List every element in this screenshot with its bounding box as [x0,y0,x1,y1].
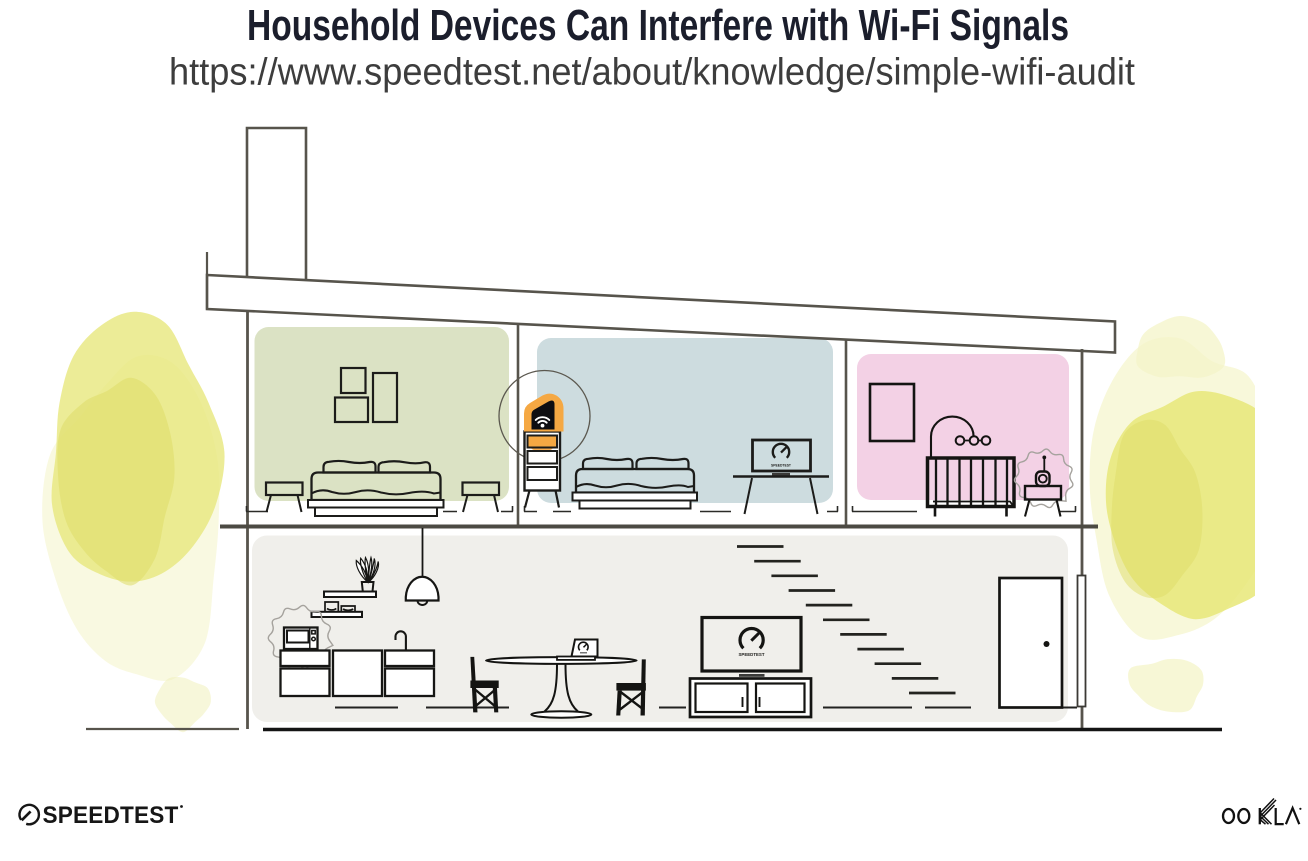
svg-text:SPEEDTEST: SPEEDTEST [43,802,179,829]
svg-text:SPEEDTEST: SPEEDTEST [739,652,765,657]
svg-text:SPEEDTEST: SPEEDTEST [771,464,792,468]
svg-text:https://www.speedtest.net/abou: https://www.speedtest.net/about/knowledg… [169,52,1135,94]
svg-text:Household Devices Can Interfer: Household Devices Can Interfere with Wi-… [247,1,1069,50]
